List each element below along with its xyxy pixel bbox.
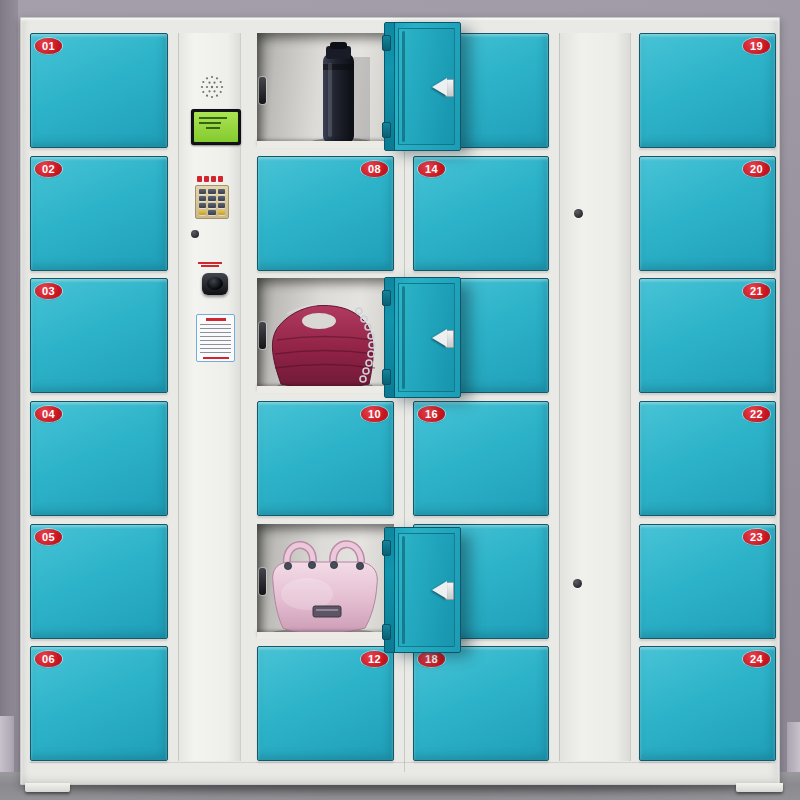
locker-column-b: 08 — [257, 33, 394, 761]
speaker-grille-icon — [198, 73, 226, 101]
locker-door-10[interactable]: 10 — [257, 401, 394, 516]
locker-cell: 23 — [639, 524, 776, 639]
locker-cell: 05 — [30, 524, 168, 639]
locker-cabinet-photo: 01 02 03 04 05 — [0, 0, 800, 800]
locker-cell: 14 — [413, 156, 549, 271]
locker-column-a: 01 02 03 04 05 — [30, 33, 168, 761]
hinge-icon — [382, 540, 391, 556]
cabinet-foot — [736, 783, 783, 792]
locker-number-badge: 14 — [418, 161, 445, 177]
locker-number-badge: 19 — [743, 38, 770, 54]
wall-shadow — [0, 0, 18, 782]
locker-cell: 02 — [30, 156, 168, 271]
hinge-icon — [382, 35, 391, 51]
locker-cell: 24 — [639, 646, 776, 761]
panel-keyhole-icon[interactable] — [191, 230, 199, 238]
keypad-key[interactable] — [208, 189, 215, 194]
locker-door-08[interactable]: 08 — [257, 156, 394, 271]
hinge-icon — [382, 369, 391, 385]
door-groove — [402, 536, 405, 644]
open-locker-door-11[interactable] — [384, 527, 461, 653]
locker-door-16[interactable]: 16 — [413, 401, 549, 516]
locker-cell: 04 — [30, 401, 168, 516]
instruction-text-lines — [200, 324, 231, 354]
instruction-title — [206, 318, 226, 321]
locker-number-badge: 24 — [743, 651, 770, 667]
locker-cell: 18 — [413, 646, 549, 761]
cabinet-foot — [25, 783, 70, 792]
locker-cell: 06 — [30, 646, 168, 761]
lcd-text-line — [199, 117, 227, 119]
locker-number-badge: 22 — [743, 406, 770, 422]
scanner-label-text — [179, 261, 240, 268]
hinge-icon — [382, 624, 391, 640]
locker-door-02[interactable]: 02 — [30, 156, 168, 271]
service-keyhole-lower-icon[interactable] — [573, 579, 582, 588]
keypad-key[interactable] — [199, 189, 206, 194]
locker-door-20[interactable]: 20 — [639, 156, 776, 271]
locker-cell: 20 — [639, 156, 776, 271]
locker-door-14[interactable]: 14 — [413, 156, 549, 271]
keypad-function-key[interactable] — [199, 210, 206, 215]
cabinet-base-seam — [29, 762, 771, 763]
lcd-display — [191, 109, 241, 145]
keypad-key[interactable] — [218, 203, 225, 208]
locker-number-badge: 04 — [35, 406, 62, 422]
hinge-icon — [382, 290, 391, 306]
latch-icon — [432, 581, 447, 599]
locker-cell: 03 — [30, 278, 168, 393]
locker-door-06[interactable]: 06 — [30, 646, 168, 761]
keypad-label-text — [179, 176, 240, 182]
barcode-scanner[interactable] — [202, 273, 228, 295]
locker-cell: 01 — [30, 33, 168, 148]
door-groove — [402, 31, 405, 142]
locker-cell — [257, 33, 394, 148]
locker-number-badge: 23 — [743, 529, 770, 545]
locker-number-badge: 18 — [418, 651, 445, 667]
locker-number-badge: 06 — [35, 651, 62, 667]
locker-cell: 16 — [413, 401, 549, 516]
keypad-key[interactable] — [218, 189, 225, 194]
stored-pink-handbag — [257, 524, 394, 639]
open-locker-compartment-09[interactable] — [257, 278, 394, 393]
keypad-key[interactable] — [208, 196, 215, 201]
locker-door-05[interactable]: 05 — [30, 524, 168, 639]
locker-door-19[interactable]: 19 — [639, 33, 776, 148]
locker-door-23[interactable]: 23 — [639, 524, 776, 639]
locker-door-21[interactable]: 21 — [639, 278, 776, 393]
locker-door-24[interactable]: 24 — [639, 646, 776, 761]
keypad[interactable] — [195, 185, 229, 219]
locker-number-badge: 16 — [418, 406, 445, 422]
locker-number-badge: 12 — [361, 651, 388, 667]
locker-number-badge: 21 — [743, 283, 770, 299]
locker-number-badge: 02 — [35, 161, 62, 177]
locker-door-22[interactable]: 22 — [639, 401, 776, 516]
locker-number-badge: 10 — [361, 406, 388, 422]
locker-door-04[interactable]: 04 — [30, 401, 168, 516]
locker-column-d: 19 20 21 22 23 — [639, 33, 776, 761]
locker-cell: 12 — [257, 646, 394, 761]
baseboard-left — [0, 716, 14, 776]
open-locker-door-09[interactable] — [384, 277, 461, 398]
instruction-label — [196, 314, 235, 362]
locker-cell: 22 — [639, 401, 776, 516]
locker-number-badge: 05 — [35, 529, 62, 545]
locker-cell: 10 — [257, 401, 394, 516]
locker-door-03[interactable]: 03 — [30, 278, 168, 393]
locker-number-badge: 20 — [743, 161, 770, 177]
open-locker-door-07[interactable] — [384, 22, 461, 151]
locker-number-badge: 01 — [35, 38, 62, 54]
keypad-key[interactable] — [208, 203, 215, 208]
open-locker-compartment-07[interactable] — [257, 33, 394, 148]
lcd-text-line — [206, 127, 220, 129]
locker-door-01[interactable]: 01 — [30, 33, 168, 148]
locker-cell: 08 — [257, 156, 394, 271]
instruction-footer — [203, 357, 229, 359]
locker-cell: 19 — [639, 33, 776, 148]
open-locker-compartment-11[interactable] — [257, 524, 394, 639]
service-column — [559, 33, 631, 761]
latch-icon — [432, 78, 447, 96]
stored-thermos-bottle — [257, 33, 394, 148]
locker-cabinet: 01 02 03 04 05 — [20, 17, 780, 785]
lcd-text-line — [199, 122, 221, 124]
locker-number-badge: 03 — [35, 283, 62, 299]
hinge-icon — [382, 122, 391, 138]
lcd-screen — [194, 112, 238, 142]
control-panel-column — [178, 33, 241, 761]
keypad-function-key[interactable] — [218, 210, 225, 215]
locker-cell — [257, 278, 394, 393]
service-keyhole-upper-icon[interactable] — [574, 209, 583, 218]
keypad-key[interactable] — [218, 196, 225, 201]
keypad-key[interactable] — [199, 203, 206, 208]
door-groove — [402, 286, 405, 389]
keypad-key[interactable] — [199, 196, 206, 201]
locker-cell: 21 — [639, 278, 776, 393]
keypad-key[interactable] — [208, 210, 215, 215]
locker-number-badge: 08 — [361, 161, 388, 177]
locker-door-18[interactable]: 18 — [413, 646, 549, 761]
locker-cell — [257, 524, 394, 639]
locker-door-12[interactable]: 12 — [257, 646, 394, 761]
stored-maroon-handbag — [257, 278, 394, 393]
latch-icon — [432, 329, 447, 347]
